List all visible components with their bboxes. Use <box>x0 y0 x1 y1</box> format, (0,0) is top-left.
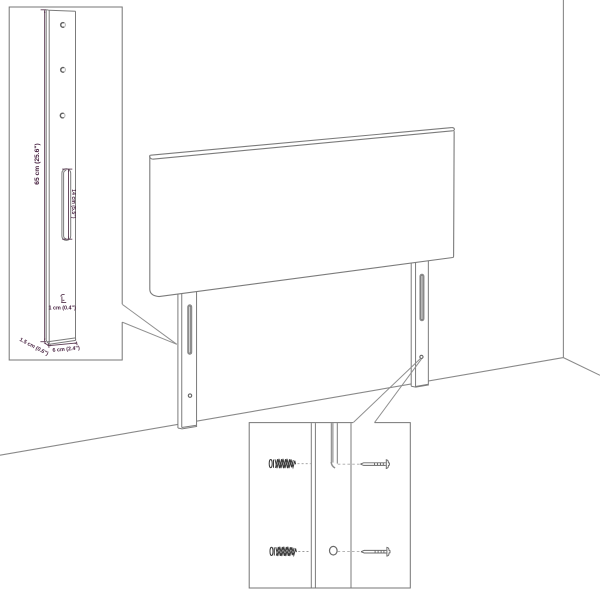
svg-text:65 cm (25.6"): 65 cm (25.6") <box>34 143 41 184</box>
svg-text:14 cm (5.5"): 14 cm (5.5") <box>70 189 76 219</box>
svg-text:1 cm (0.4"): 1 cm (0.4") <box>48 306 76 312</box>
